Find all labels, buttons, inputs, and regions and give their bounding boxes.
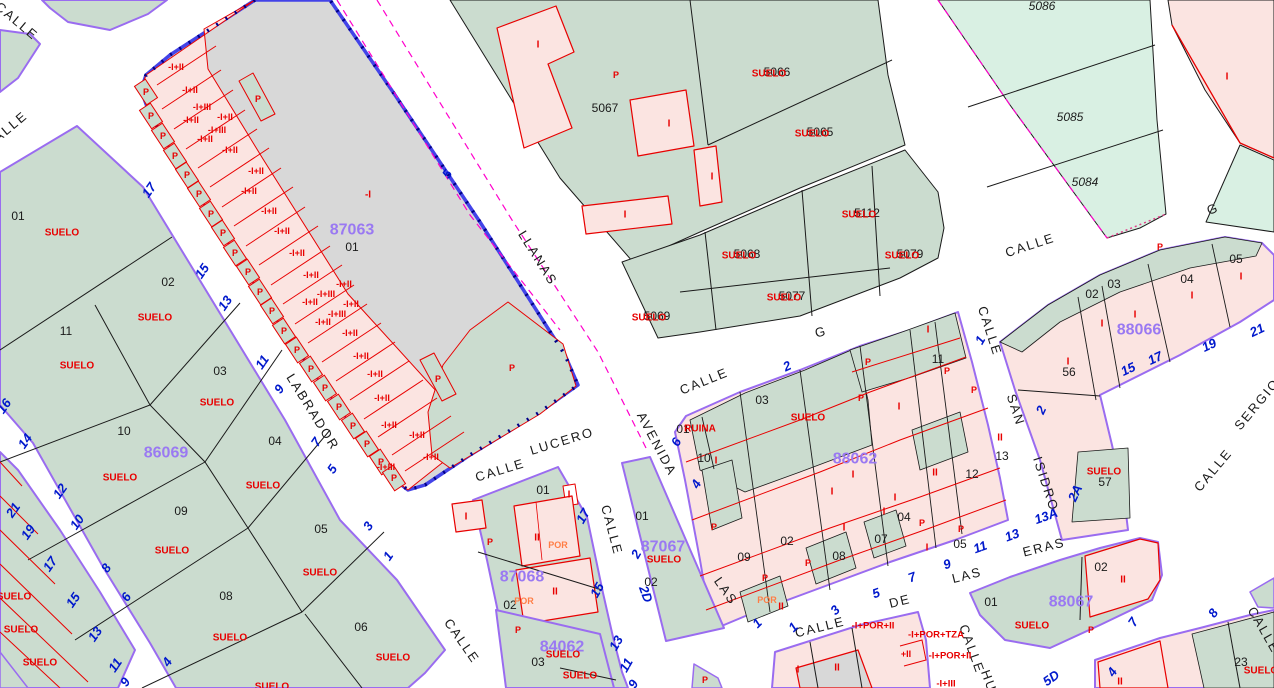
construction-label: +II — [901, 649, 911, 659]
suelo-label: SUELO — [842, 210, 877, 221]
ruina-label: RUINA — [684, 424, 716, 435]
construction-label: P — [805, 558, 811, 568]
parcel-number: 05 — [953, 537, 967, 551]
construction-label: -I+II — [353, 351, 369, 361]
parcel-number: 05 — [1229, 252, 1243, 266]
construction-label: I — [927, 325, 930, 336]
construction-label: P — [172, 151, 178, 161]
suelo-label: SUELO — [1244, 666, 1274, 677]
suelo-label: SUELO — [60, 361, 95, 372]
construction-label: I — [1226, 72, 1229, 83]
construction-label: -I+II — [342, 328, 358, 338]
suelo-label: SUELO — [795, 129, 830, 140]
construction-label: -I+II — [381, 420, 397, 430]
suelo-label: SUELO — [1087, 467, 1122, 478]
construction-label: -I+II — [222, 145, 238, 155]
parcel-number: 11 — [60, 324, 73, 338]
construction-label: P — [515, 625, 521, 635]
block-id: 87067 — [641, 539, 686, 556]
parcel-number: 03 — [213, 364, 227, 378]
construction-label: II — [552, 587, 558, 598]
suelo-label: SUELO — [0, 592, 31, 603]
construction-label: P — [322, 383, 328, 393]
construction-label: P — [487, 537, 493, 547]
construction-label: I — [797, 665, 800, 676]
construction-label: I — [624, 210, 627, 221]
construction-label: -I+POR+TZA — [908, 630, 964, 641]
block-id: 88067 — [1049, 594, 1094, 611]
construction-label: P — [971, 385, 977, 395]
construction-label: I — [537, 40, 540, 51]
construction-label: P — [208, 209, 214, 219]
construction-label: I — [898, 402, 901, 413]
construction-label: P — [858, 393, 864, 403]
construction-label: P — [294, 345, 300, 355]
construction-label: -I+II — [374, 393, 390, 403]
construction-label: -I+II — [168, 62, 184, 72]
suelo-label: SUELO — [791, 413, 826, 424]
construction-label: P — [364, 439, 370, 449]
parcel-number: 05 — [314, 522, 328, 536]
construction-label: P — [919, 518, 925, 528]
parcel-number: 04 — [1180, 272, 1194, 286]
parcel-number: 01 — [345, 240, 359, 254]
parcel-number: 04 — [897, 510, 911, 524]
suelo-label: SUELO — [1015, 621, 1050, 632]
parcel-number: 01 — [11, 209, 25, 223]
construction-label: P — [944, 366, 950, 376]
construction-label: P — [391, 473, 397, 483]
construction-label: -I+POR+II — [852, 621, 895, 632]
construction-label: I — [715, 456, 718, 467]
construction-label: II — [997, 433, 1003, 444]
construction-label: -I+II — [182, 85, 198, 95]
construction-label: -I+II — [343, 299, 359, 309]
construction-label: I — [843, 523, 846, 534]
construction-label: P — [232, 248, 238, 258]
suelo-label: SUELO — [4, 625, 39, 636]
suelo-label: SUELO — [246, 481, 281, 492]
construction-label: P — [702, 675, 708, 685]
construction-label: P — [336, 402, 342, 412]
construction-label: P — [220, 228, 226, 238]
cadastral-map[interactable]: PPPPPPPPPPPPPPPPPPPPPCALLECALLELABRADORL… — [0, 0, 1274, 688]
construction-label: -I+II — [315, 317, 331, 327]
block-id: 86069 — [144, 445, 189, 462]
construction-label: I — [883, 507, 886, 518]
construction-label: P — [184, 170, 190, 180]
parcel-number: 02 — [1094, 560, 1108, 574]
parcel-number: 01 — [984, 595, 998, 609]
construction-label: P — [1157, 242, 1163, 252]
block-id: 88066 — [1117, 322, 1162, 339]
construction-label: II — [1117, 677, 1123, 688]
construction-label: P — [308, 364, 314, 374]
construction-label: P — [143, 87, 149, 97]
construction-label: II — [778, 602, 784, 613]
parcel-number: 12 — [965, 467, 979, 481]
construction-label: -I+III — [377, 462, 395, 472]
building-87068-1[interactable] — [514, 496, 580, 566]
parcel-number: 01 — [635, 509, 649, 523]
parcel-number: 03 — [755, 393, 769, 407]
parcel-number: 5067 — [592, 101, 619, 115]
por-label: POR — [514, 596, 534, 606]
construction-label: -I+II — [261, 206, 277, 216]
construction-label: P — [958, 524, 964, 534]
construction-label: II — [1120, 575, 1126, 586]
construction-label: P — [281, 326, 287, 336]
construction-label: -I+II — [336, 279, 352, 289]
construction-label: I — [1067, 357, 1070, 368]
construction-label: P — [865, 357, 871, 367]
parcel-number: 02 — [161, 275, 175, 289]
parcel-number: 07 — [874, 532, 888, 546]
suelo-label: SUELO — [767, 293, 802, 304]
parcel-number: 02 — [780, 534, 794, 548]
construction-label: P — [350, 421, 356, 431]
parcel-number: 01 — [536, 483, 550, 497]
construction-label: I — [926, 543, 929, 554]
construction-label: I — [568, 490, 571, 501]
suelo-label: SUELO — [376, 653, 411, 664]
suelo-label: SUELO — [138, 313, 173, 324]
construction-label: P — [160, 131, 166, 141]
construction-label: II — [534, 533, 540, 544]
parcel-number: 09 — [737, 550, 751, 564]
parcel-number: 10 — [117, 424, 131, 438]
construction-label: -I+II — [303, 270, 319, 280]
construction-label: P — [613, 70, 619, 80]
construction-label: P — [245, 267, 251, 277]
suelo-label: SUELO — [213, 633, 248, 644]
suelo-label: SUELO — [23, 658, 58, 669]
construction-label: I — [1240, 272, 1243, 283]
construction-label: -I+II — [423, 452, 439, 462]
construction-label: -I+II — [241, 186, 257, 196]
parcel-number: 11 — [932, 352, 945, 366]
construction-label: -I+II — [274, 226, 290, 236]
construction-label: P — [257, 287, 263, 297]
building-5067-a[interactable] — [630, 90, 694, 156]
construction-label: P — [148, 111, 154, 121]
suelo-label: SUELO — [546, 650, 581, 661]
construction-label: P — [509, 363, 515, 373]
construction-label: -I+III — [936, 679, 955, 688]
construction-label: -I+II — [367, 369, 383, 379]
parcel-number: 02 — [1085, 287, 1099, 301]
suelo-label: SUELO — [632, 313, 667, 324]
construction-label: I — [852, 470, 855, 481]
parcel-number: 5086 — [1029, 0, 1056, 13]
construction-label: P — [435, 374, 441, 384]
construction-label: -I+II — [302, 297, 318, 307]
parcel-number: 10 — [697, 451, 711, 465]
construction-label: -I+II — [409, 430, 425, 440]
construction-label: P — [269, 306, 275, 316]
construction-label: -I+II — [183, 115, 199, 125]
suelo-label: SUELO — [885, 251, 920, 262]
suelo-label: SUELO — [200, 398, 235, 409]
parcel-number: 13 — [995, 449, 1009, 463]
construction-label: -I+III — [317, 289, 335, 299]
parcel-number: 08 — [219, 589, 233, 603]
parcel-number: 5085 — [1057, 110, 1084, 124]
construction-label: -I+II — [197, 134, 213, 144]
parcel-number: 03 — [531, 655, 545, 669]
suelo-label: SUELO — [103, 473, 138, 484]
construction-label: -I+II — [289, 248, 305, 258]
construction-label: I — [668, 119, 671, 130]
construction-label: I — [1101, 319, 1104, 330]
construction-label: -I+POR+II — [929, 651, 972, 662]
construction-label: -I+III — [193, 102, 211, 112]
parcel-number: 06 — [354, 620, 368, 634]
suelo-label: SUELO — [45, 228, 80, 239]
construction-label: I — [711, 172, 714, 183]
suelo-label: SUELO — [752, 69, 787, 80]
construction-label: I — [831, 487, 834, 498]
construction-label: P — [196, 189, 202, 199]
construction-label: -I+II — [217, 112, 233, 122]
construction-label: P — [762, 573, 768, 583]
block-id: 87063 — [330, 222, 375, 239]
construction-label: P — [1088, 625, 1094, 635]
parcel-number: 04 — [268, 434, 282, 448]
suelo-label: SUELO — [722, 251, 757, 262]
parcel-number: 5084 — [1072, 175, 1099, 189]
construction-label: II — [834, 663, 840, 674]
construction-label: I — [465, 512, 468, 523]
suelo-label: SUELO — [647, 555, 682, 566]
construction-label: -I — [365, 190, 371, 201]
construction-label: P — [255, 94, 261, 104]
suelo-label: SUELO — [155, 546, 190, 557]
construction-label: II — [932, 468, 938, 479]
building-87068-sq[interactable] — [452, 500, 486, 532]
map-svg: PPPPPPPPPPPPPPPPPPPPPCALLECALLELABRADORL… — [0, 0, 1274, 688]
construction-label: P — [711, 522, 717, 532]
suelo-label: SUELO — [563, 671, 598, 682]
por-label: POR — [548, 540, 568, 550]
suelo-label: SUELO — [255, 682, 290, 688]
construction-label: I — [1191, 291, 1194, 302]
construction-label: I — [1134, 310, 1137, 321]
construction-label: I — [894, 493, 897, 504]
block-id: 88062 — [833, 451, 878, 468]
por-label: POR — [757, 595, 777, 605]
block-id: 87068 — [500, 569, 545, 586]
parcel-number: 09 — [174, 504, 188, 518]
parcel-number: 08 — [832, 549, 846, 563]
construction-label: -I+II — [248, 166, 264, 176]
suelo-label: SUELO — [303, 568, 338, 579]
parcel-number: 03 — [1107, 277, 1121, 291]
